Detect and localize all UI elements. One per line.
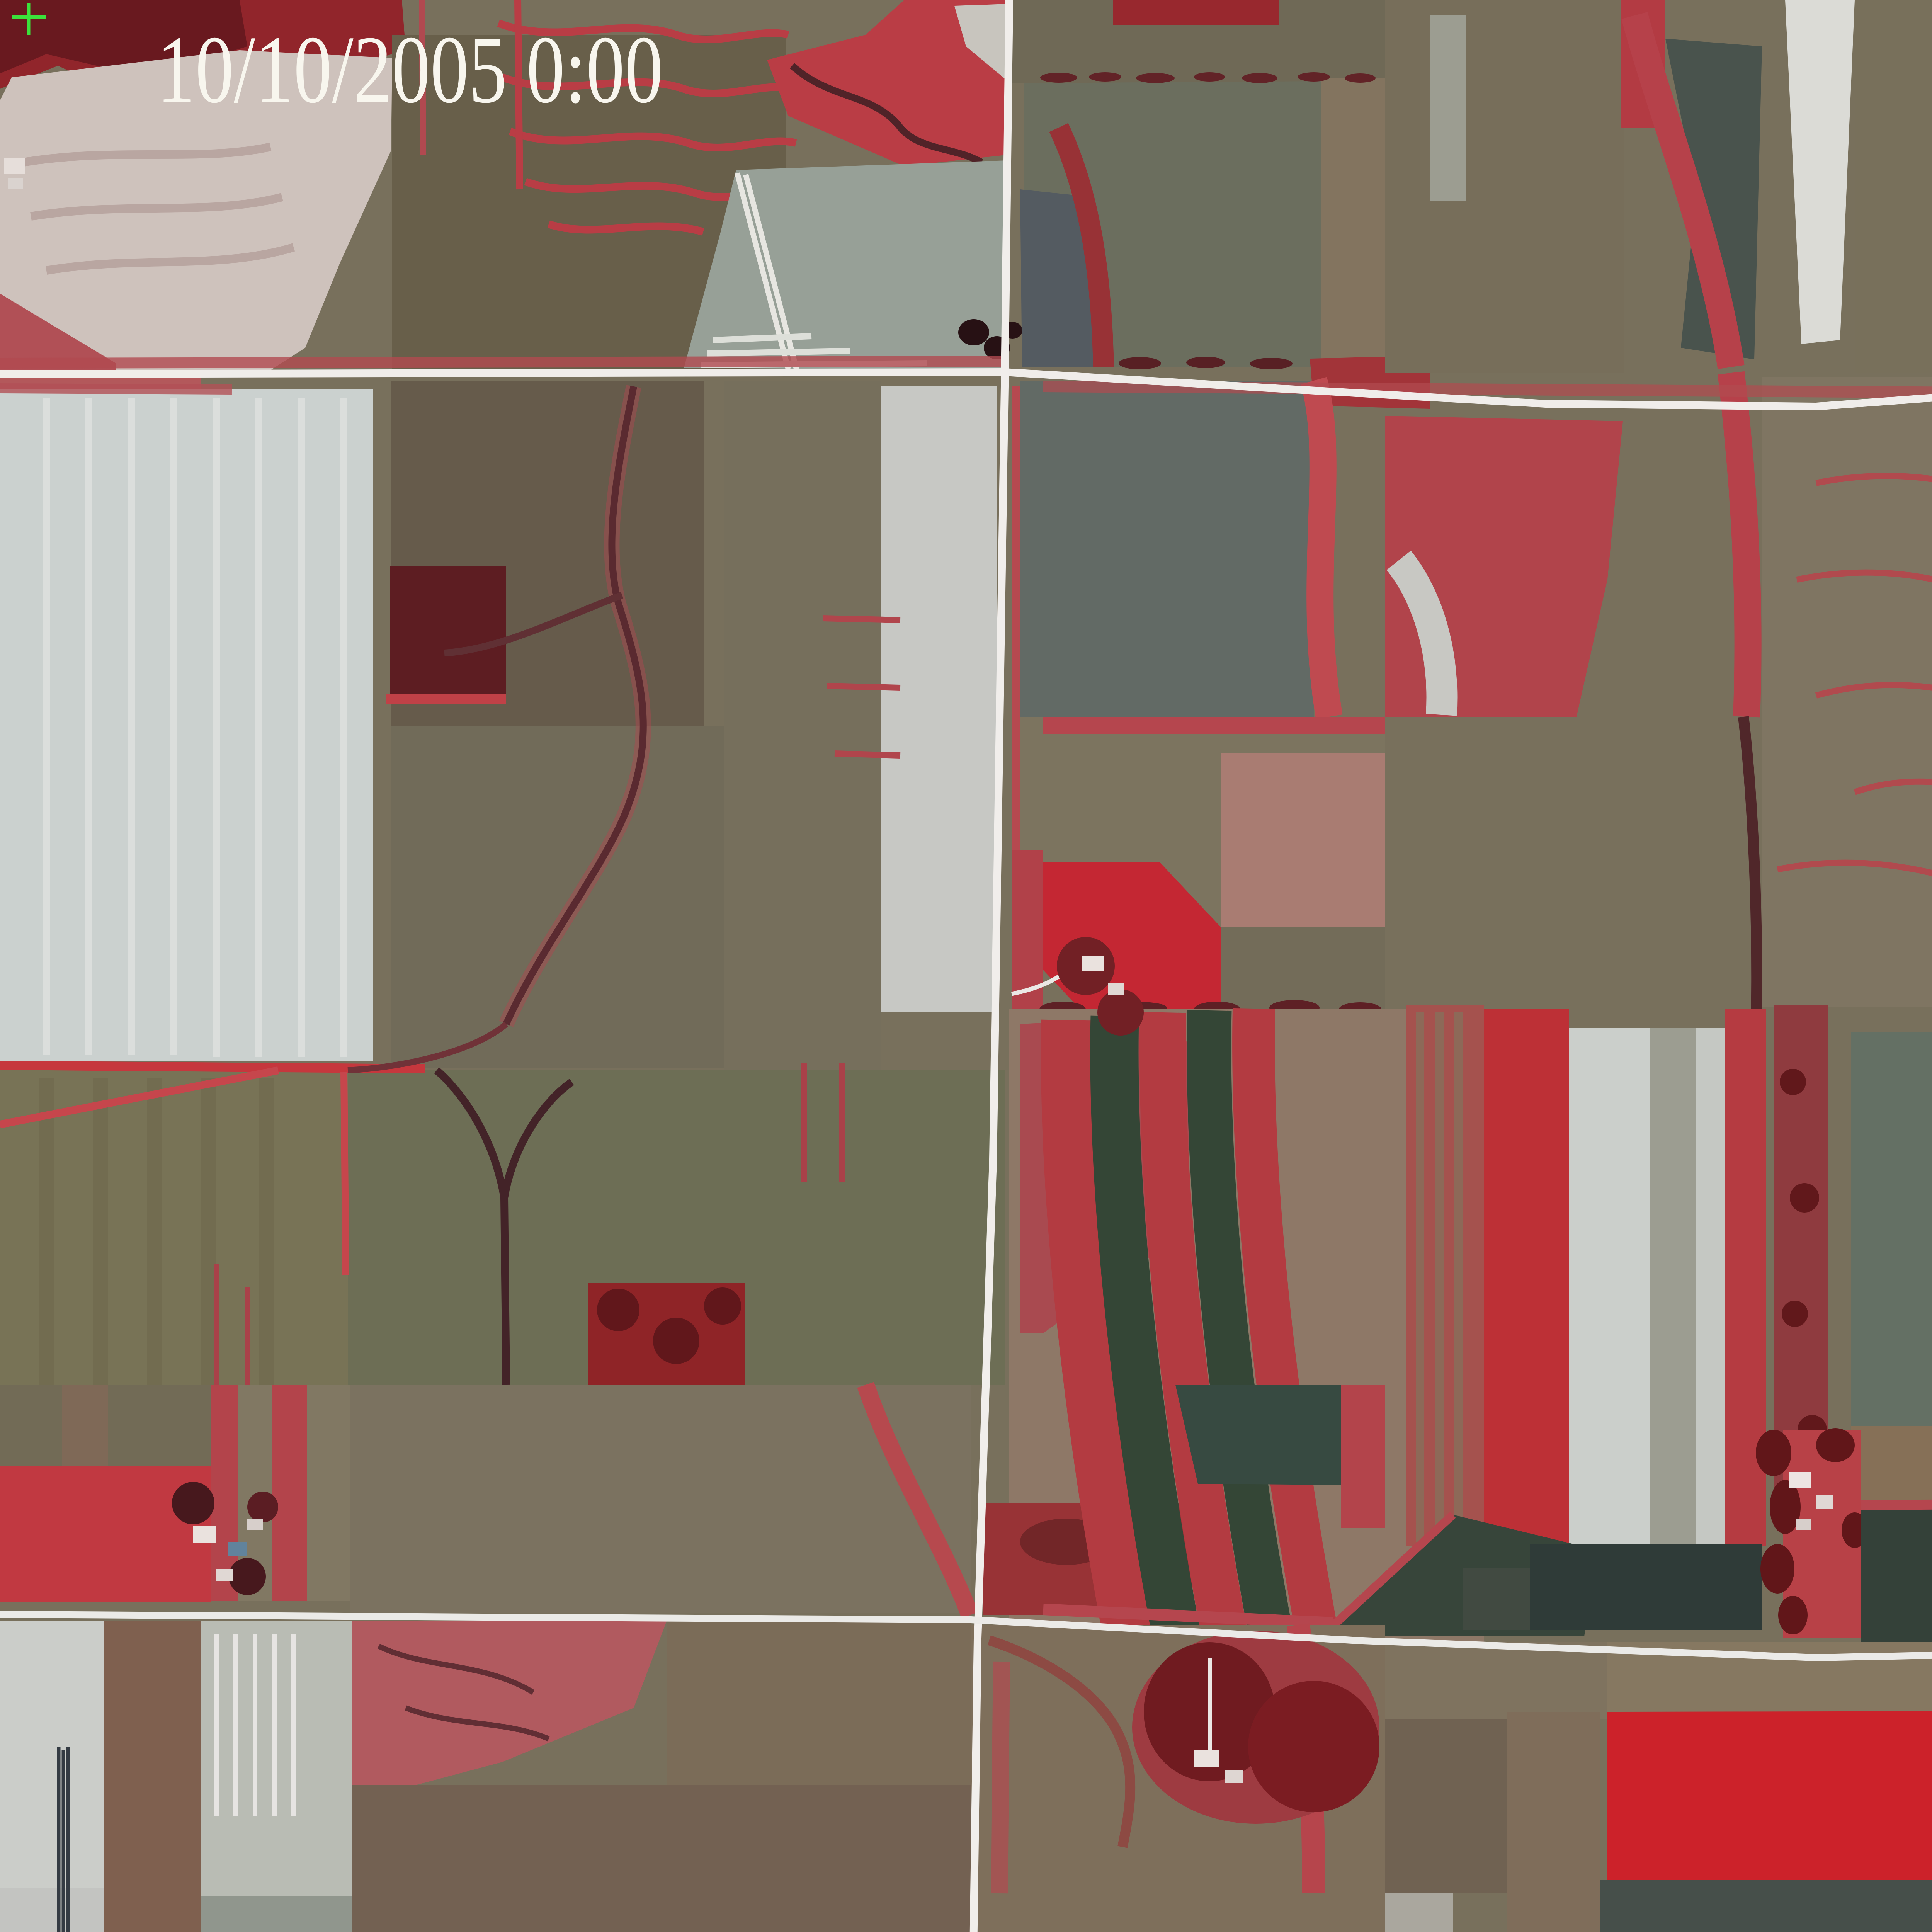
svg-text:10/10/2005 0:00: 10/10/2005 0:00 — [157, 16, 663, 123]
